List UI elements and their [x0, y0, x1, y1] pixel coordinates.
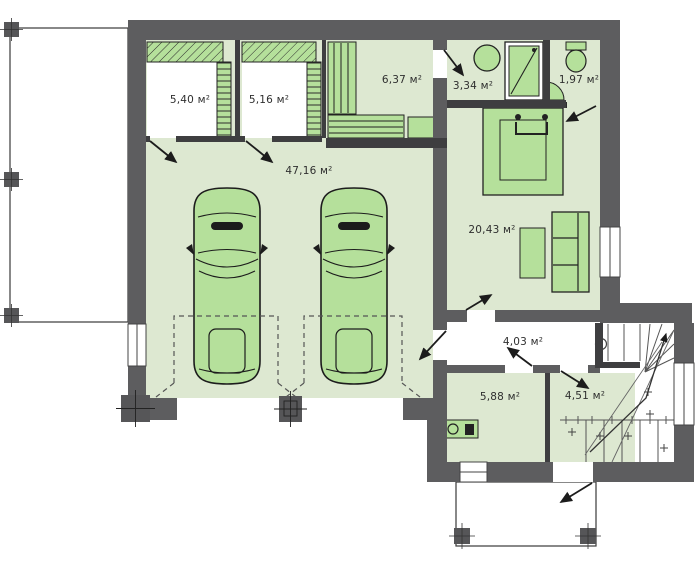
shower-icon — [505, 42, 543, 100]
room-label-storage-left: 5,40 м² — [157, 94, 223, 106]
wall — [128, 366, 146, 398]
sofa-icon — [552, 212, 589, 292]
wall — [433, 40, 447, 50]
floor-plan-canvas — [0, 0, 700, 575]
wall — [595, 323, 603, 368]
carport-outline — [10, 28, 128, 322]
car-icon — [186, 188, 268, 384]
room-label-stair-room: 4,51 м² — [552, 390, 618, 402]
wall — [322, 40, 326, 138]
room-label-dressing-room: 6,37 м² — [369, 74, 435, 86]
car-icon — [313, 188, 395, 384]
wardrobe-icon — [328, 42, 356, 114]
bench-icon — [328, 115, 404, 138]
bed-icon — [479, 102, 567, 195]
carport — [0, 18, 128, 327]
room-label-boiler-room: 5,88 м² — [467, 391, 533, 403]
boiler-room-floor — [447, 373, 545, 462]
sink-icon — [474, 45, 500, 71]
entrance-opening — [553, 462, 593, 482]
wall — [600, 40, 620, 227]
wall — [533, 365, 560, 373]
wall — [487, 462, 553, 482]
room-label-storage-right: 5,16 м² — [236, 94, 302, 106]
wall — [326, 138, 447, 148]
column-icon — [116, 390, 155, 427]
cabinet-icon — [408, 117, 437, 138]
wall — [447, 100, 566, 108]
toilet-icon — [566, 42, 586, 72]
wall — [545, 373, 550, 462]
wall — [674, 323, 694, 363]
wall — [272, 136, 322, 142]
wall — [447, 365, 505, 373]
floor-plan: 5,40 м² 5,16 м² 6,37 м² 3,34 м² 1,97 м² … — [0, 0, 700, 575]
wall — [674, 425, 694, 482]
window-icon — [674, 363, 694, 425]
wall — [128, 40, 146, 324]
wall — [543, 40, 550, 100]
wall — [176, 136, 245, 142]
wall — [618, 303, 692, 323]
room-label-living-room: 20,43 м² — [459, 224, 525, 236]
boiler-icon — [445, 420, 478, 438]
window-icon — [128, 324, 146, 366]
wall — [597, 362, 640, 368]
room-label-wc: 1,97 м² — [546, 74, 612, 86]
room-label-hallway: 4,03 м² — [490, 336, 556, 348]
wall — [433, 78, 447, 330]
wall — [433, 360, 447, 462]
wall — [427, 462, 460, 482]
wall — [146, 136, 150, 142]
room-label-garage: 47,16 м² — [276, 165, 342, 177]
wall — [447, 310, 467, 322]
window-icon — [600, 227, 620, 277]
wall — [128, 20, 620, 40]
room-label-bathroom: 3,34 м² — [440, 80, 506, 92]
wall — [495, 310, 600, 322]
wall — [600, 277, 620, 323]
wall — [235, 40, 240, 138]
window-icon — [460, 462, 487, 482]
